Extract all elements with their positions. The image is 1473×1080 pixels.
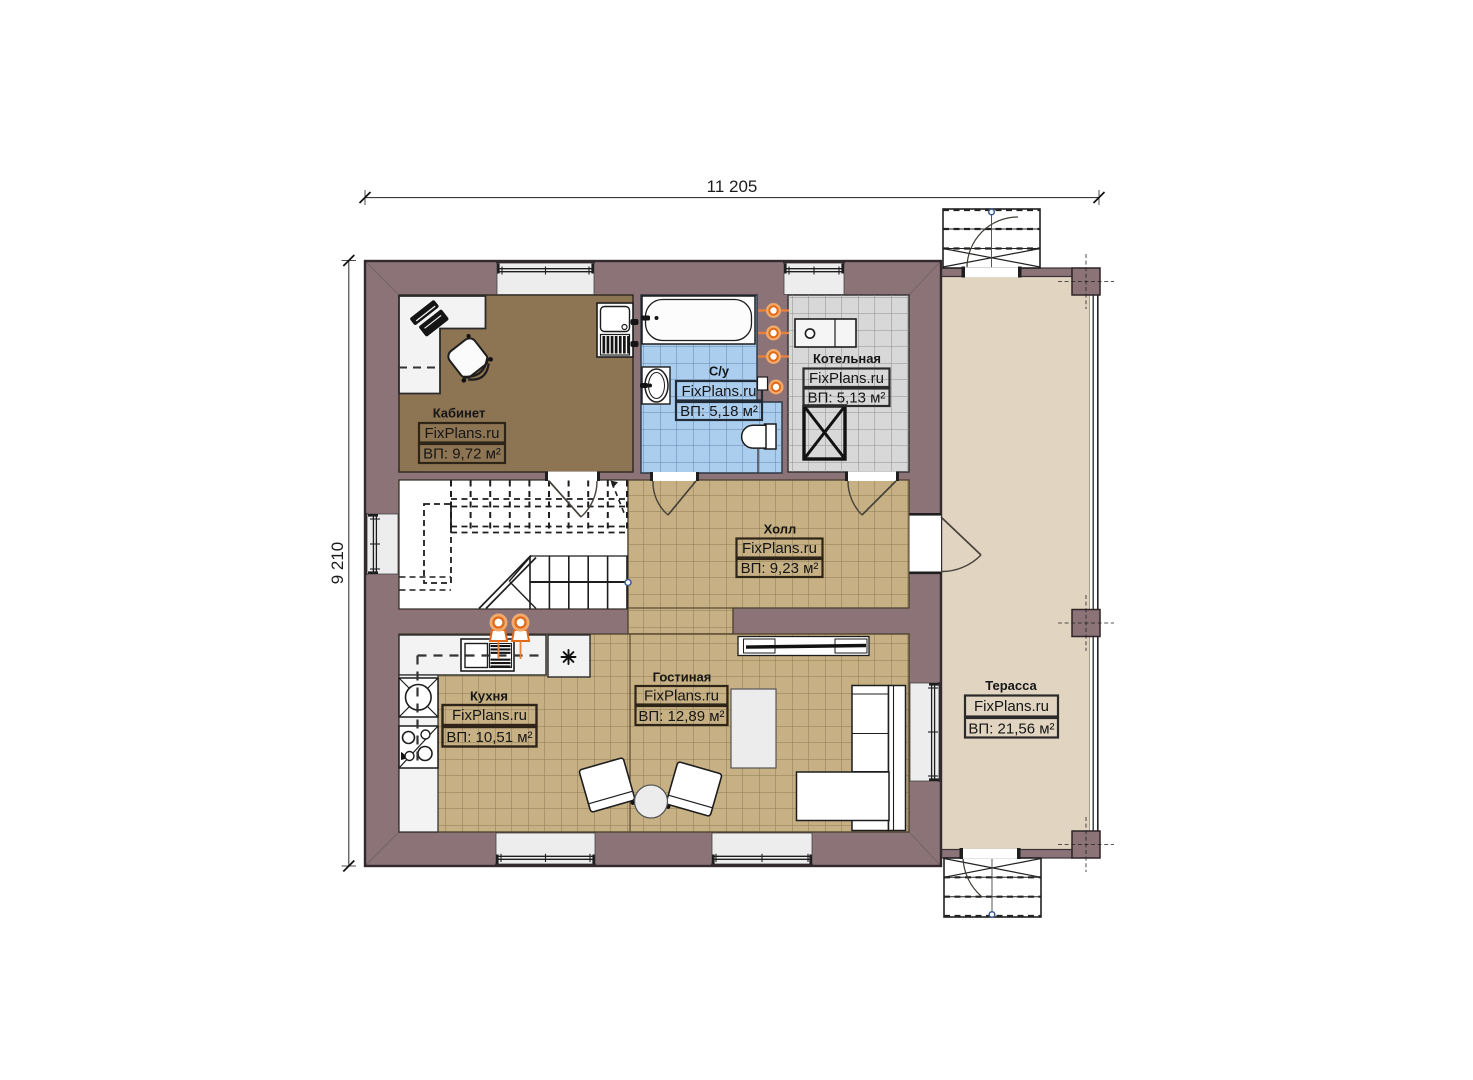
svg-text:Терасса: Терасса <box>985 678 1037 693</box>
svg-text:Холл: Холл <box>764 522 797 537</box>
svg-text:ВП: 5,18 м²: ВП: 5,18 м² <box>680 403 758 420</box>
svg-text:Котельная: Котельная <box>813 351 881 366</box>
svg-text:Гостиная: Гостиная <box>653 670 712 685</box>
svg-text:FixPlans.ru: FixPlans.ru <box>974 698 1049 715</box>
svg-text:ВП: 10,51 м²: ВП: 10,51 м² <box>446 729 532 746</box>
svg-text:Кабинет: Кабинет <box>433 406 486 421</box>
svg-text:FixPlans.ru: FixPlans.ru <box>644 687 719 704</box>
svg-text:FixPlans.ru: FixPlans.ru <box>742 540 817 557</box>
svg-text:11 205: 11 205 <box>707 177 758 196</box>
svg-text:FixPlans.ru: FixPlans.ru <box>424 425 499 442</box>
svg-text:Кухня: Кухня <box>470 689 508 704</box>
svg-text:ВП: 21,56 м²: ВП: 21,56 м² <box>968 721 1054 738</box>
svg-text:9 210: 9 210 <box>328 542 347 585</box>
svg-text:FixPlans.ru: FixPlans.ru <box>452 707 527 724</box>
svg-text:ВП: 9,23 м²: ВП: 9,23 м² <box>741 560 819 577</box>
svg-text:FixPlans.ru: FixPlans.ru <box>809 370 884 387</box>
svg-text:ВП: 12,89 м²: ВП: 12,89 м² <box>638 708 724 725</box>
svg-text:ВП: 9,72 м²: ВП: 9,72 м² <box>423 446 501 463</box>
svg-text:ВП: 5,13 м²: ВП: 5,13 м² <box>808 389 886 406</box>
svg-text:С/у: С/у <box>709 364 730 379</box>
svg-text:FixPlans.ru: FixPlans.ru <box>681 383 756 400</box>
